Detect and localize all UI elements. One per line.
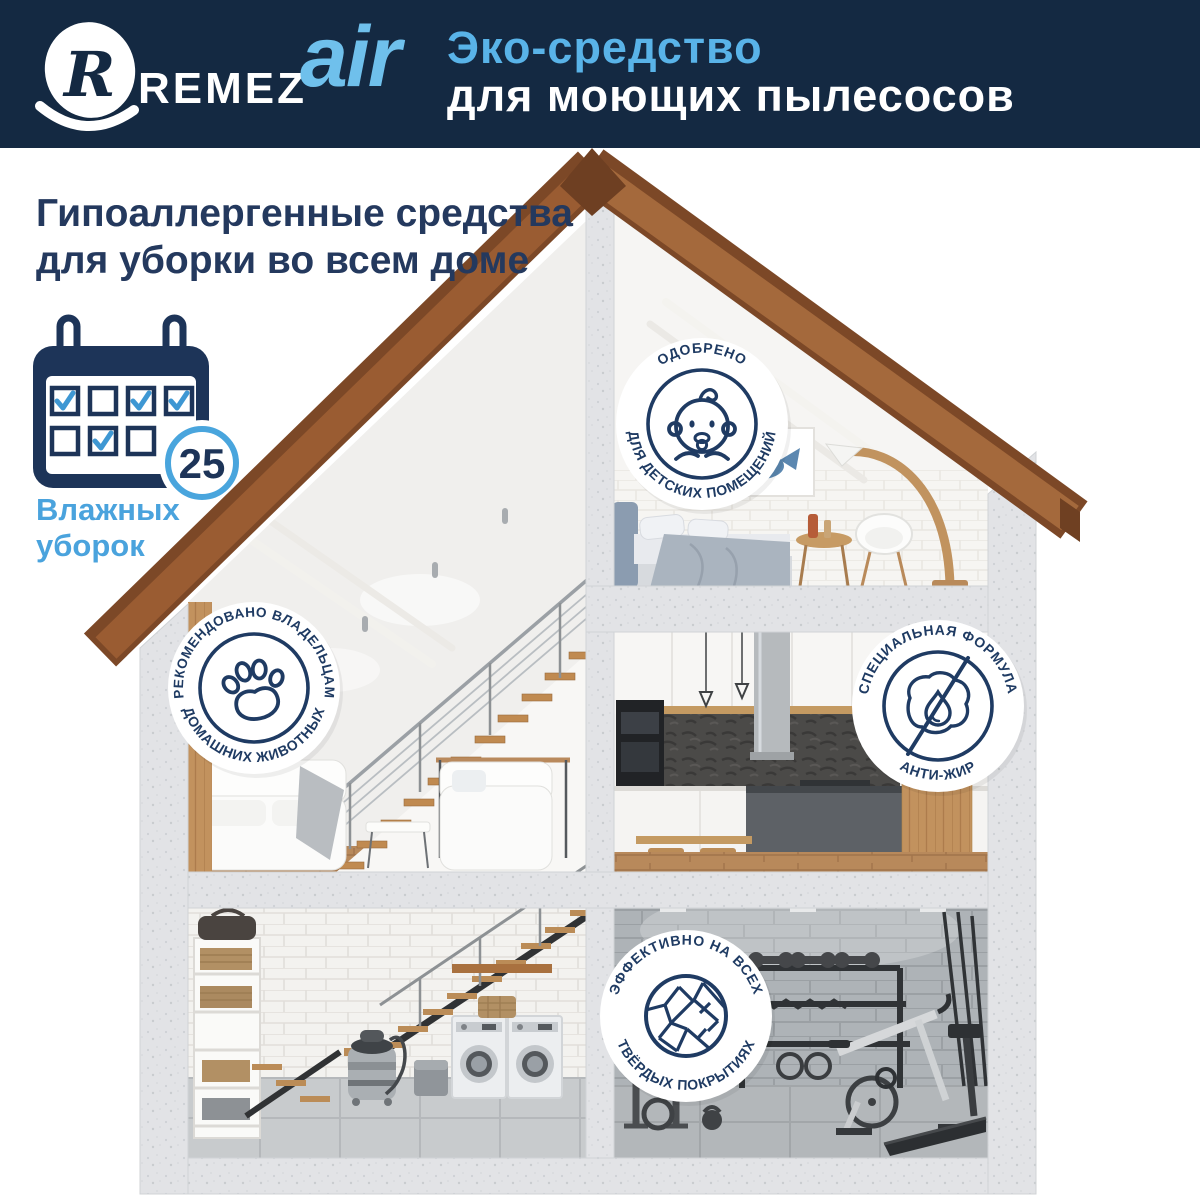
wall-shelf — [452, 964, 552, 973]
laundry-basket — [414, 1060, 448, 1096]
foundation-slab — [140, 1158, 1036, 1194]
mid-floor-slab — [140, 872, 1036, 908]
right-wall — [988, 452, 1036, 1194]
attic-floor-slab — [586, 586, 1036, 632]
page-title: Гипоаллергенные средства для уборки во в… — [36, 190, 573, 284]
house-illustration: 25 Влажных уборок — [0, 0, 1200, 1200]
counter-label-line1: Влажных — [36, 492, 180, 527]
kitchen-floor — [612, 852, 988, 874]
page-title-line2: для уборки во всем доме — [36, 237, 573, 284]
infographic-page: R REMEZ air Эко-средство для моющих пыле… — [0, 0, 1200, 1200]
counter-value: 25 — [179, 440, 226, 487]
armchair — [440, 762, 552, 870]
storage-rack — [194, 910, 260, 1138]
page-title-line1: Гипоаллергенные средства — [36, 190, 573, 237]
counter-label-line2: уборок — [36, 528, 145, 563]
